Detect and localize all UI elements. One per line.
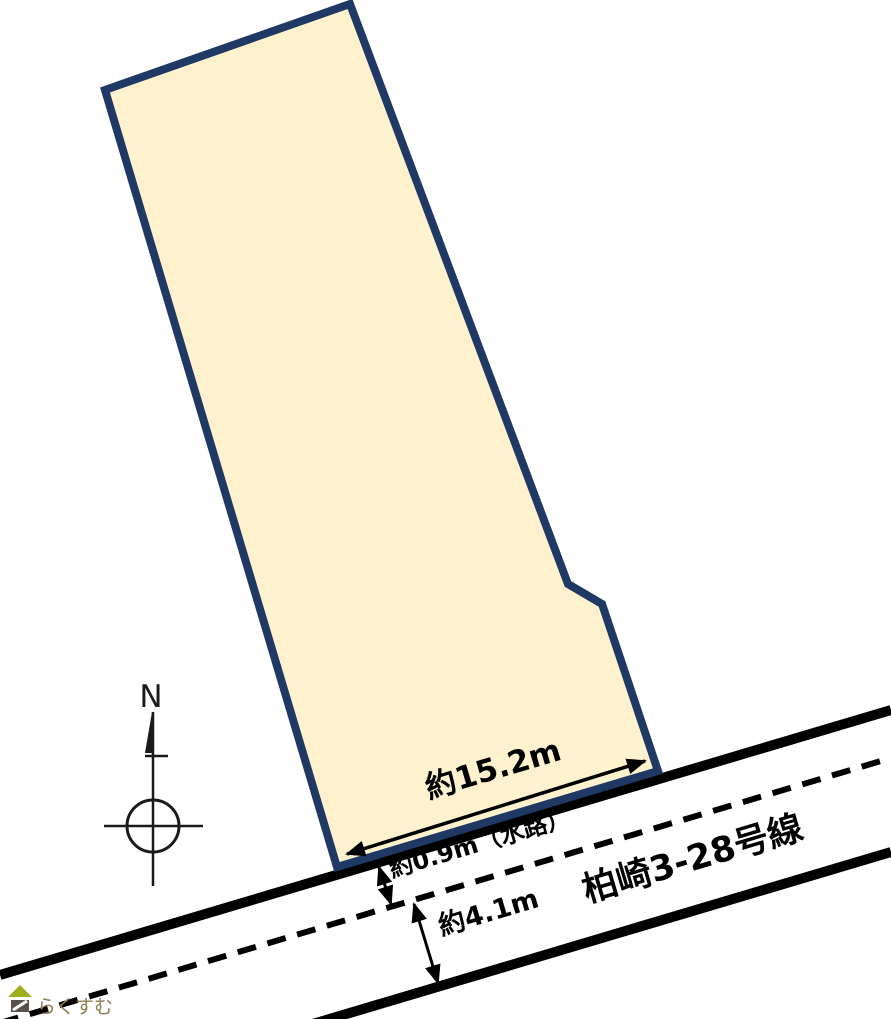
rakusumu-logo: らくすむ xyxy=(8,985,113,1018)
site-plan-canvas: 約15.2m 約0.9m（水路） 約4.1m 柏崎3-28号線 N らくすむ xyxy=(0,0,891,1019)
north-label: N xyxy=(139,679,162,715)
road-name-label: 柏崎3-28号線 xyxy=(578,808,808,911)
land-parcel-polygon xyxy=(105,4,658,867)
road-width-arrow xyxy=(414,904,438,983)
north-compass-icon: N xyxy=(104,679,203,886)
waterway-width-arrow xyxy=(379,867,391,904)
house-icon xyxy=(8,985,32,1012)
site-plan-drawing: 約15.2m 約0.9m（水路） 約4.1m 柏崎3-28号線 N らくすむ xyxy=(0,0,891,1019)
logo-text: らくすむ xyxy=(37,996,113,1018)
compass-arrowhead xyxy=(145,712,153,753)
house-roof-shape xyxy=(8,985,32,997)
